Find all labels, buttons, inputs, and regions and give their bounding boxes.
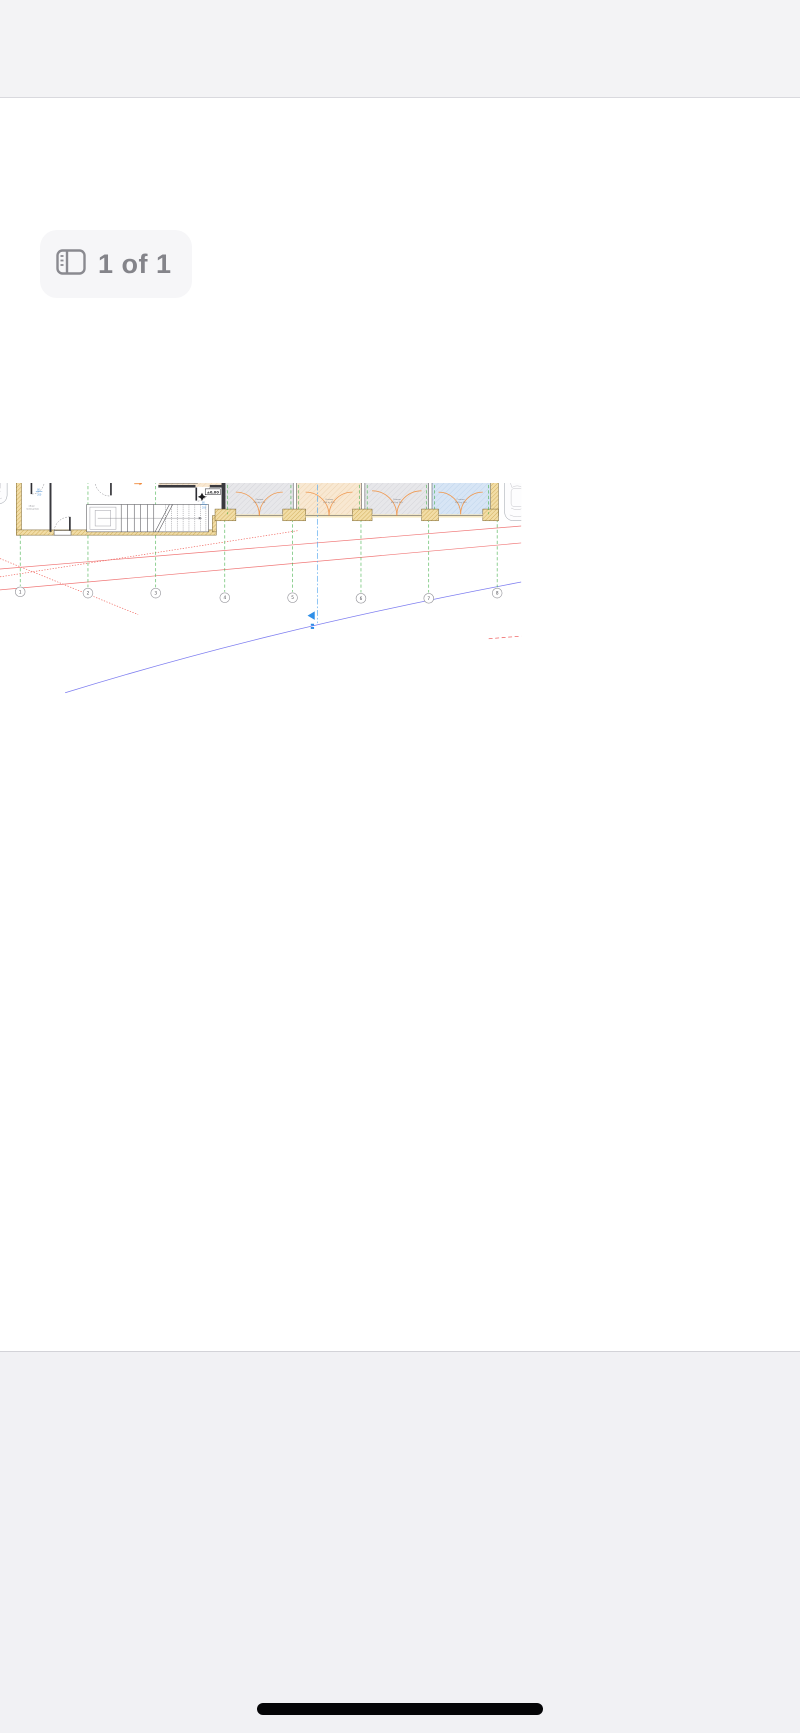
status-bar (0, 0, 800, 98)
axis-label: 4 (223, 595, 226, 600)
garage-door-spec: 250 by 210 (391, 502, 403, 504)
garage-door-spec: 250 by 210 (253, 502, 265, 504)
level-mark-label: ±0,00 (207, 490, 219, 494)
axis-label: 8 (496, 591, 499, 596)
axis-label: 1 (19, 589, 22, 594)
common-room-label: общи (29, 504, 36, 507)
axis-label: 6 (360, 596, 363, 601)
garage-door-spec: Custom (325, 498, 333, 501)
door-size-label: 200 (202, 506, 207, 509)
common-room-label2: помещения (26, 508, 39, 510)
floor-plan-document[interactable]: ВАРИАНТ 2 ЗП 239,57 m² (0, 483, 800, 1203)
garage-door-spec: 250 by 210 (455, 502, 467, 504)
pdf-page[interactable]: 1 of 1 (0, 98, 800, 1351)
door-size-label: 80 (37, 488, 40, 491)
axis-bubbles-bottom: 1 2 3 4 5 6 7 8 (15, 587, 502, 603)
garage-door-spec: Custom (457, 498, 465, 501)
footer-chrome (0, 1351, 800, 1733)
floor-plan-svg: ВАРИАНТ 2 ЗП 239,57 m² (0, 483, 800, 1203)
sidebar-icon (56, 249, 86, 280)
axis-label: 7 (427, 596, 430, 601)
car-icon (503, 483, 531, 521)
staircase (87, 505, 209, 532)
axis-label: 2 (87, 591, 90, 596)
door-size-label: 80 (202, 502, 205, 505)
level-star-icon (198, 493, 206, 501)
home-indicator[interactable] (257, 1703, 543, 1715)
door-size-label: 200 (37, 493, 42, 496)
axis-label: 3 (154, 591, 157, 596)
garage-door-spec: Custom (255, 498, 263, 501)
page-indicator-chip[interactable]: 1 of 1 (40, 230, 192, 298)
garage-door-spec: Custom (393, 498, 401, 501)
axis-label: 5 (291, 595, 294, 600)
page-indicator-label: 1 of 1 (98, 249, 172, 280)
garage-door-spec: 250 by 210 (323, 502, 335, 504)
car-icon (0, 483, 9, 504)
elevator (119, 483, 158, 485)
